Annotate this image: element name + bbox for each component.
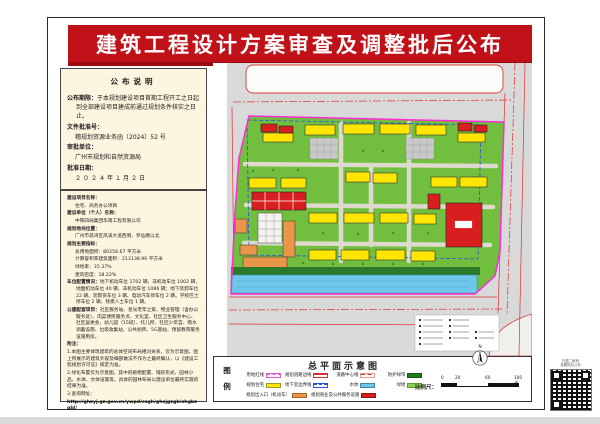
swatch-buffer-green — [407, 373, 422, 378]
authority-value: 广州市规划和自然资源局 — [67, 153, 200, 162]
indicator-row: 绿地率：35.37% — [67, 265, 200, 272]
legend-item: 防护绿带 — [379, 372, 422, 378]
note-item: 3.查询网址： — [67, 392, 200, 399]
swatch-vehicle-entrance — [292, 393, 307, 398]
swatch-site-boundary — [266, 373, 281, 378]
legend-item: 水体 — [332, 382, 375, 388]
legend-item: 道路中心线 — [332, 372, 375, 378]
notes-block: 附注： 1.本图主要体现建筑的总体空间布局相对关系，仅为示意图，图上所展示的建筑… — [67, 342, 200, 413]
indicators-label: 规划主要指标： — [67, 242, 200, 249]
doc-no-value: 穗规划资源业务函〔2024〕52 号 — [67, 133, 200, 142]
note-item: 1.本图主要体现建筑的总体空间布局相对关系，仅为示意图，图上所展示的建筑外观及细… — [67, 350, 200, 370]
legend-item: 规划商业及公共服务设施 — [311, 392, 376, 398]
legend-grid: 用地红线 规划道路边线 道路中心线 防护绿带 规划住宅 地下室边界线 水体 绿地… — [238, 370, 428, 400]
legend-mark: 图 例 — [221, 363, 233, 395]
north-arrow-icon: N — [469, 343, 491, 369]
notice-panel: 公布说明 公布期限：于本规划建设项目首期工程开工之日起到全部建设项目建成前通过规… — [60, 68, 207, 190]
field-label: 规划地块位置： — [67, 227, 200, 234]
legend-panel: 图 例 总平面示意图 用地红线 规划道路边线 道路中心线 防护绿带 规划住宅 地… — [213, 356, 532, 402]
parking-info: 车位配置情况：地下机动车位 1702 辆、非机动车位 1002 辆，地面机动车位… — [67, 280, 200, 307]
page-title: 建筑工程设计方案审查及调整批后公布 — [96, 29, 504, 59]
scale-label: 比例尺： — [415, 383, 437, 391]
notice-period: 公布期限：于本规划建设项目首期工程开工之日起到全部建设项目建成前通过规划条件核实… — [67, 94, 200, 122]
indicator-row: 计算容积率建筑面积：213138.96 平方米 — [67, 257, 200, 264]
approval-date-label: 批准日期： — [67, 164, 200, 173]
authority-label: 审批单位： — [67, 143, 200, 152]
note-item: 2.绿化布置仅为示意图，其中的植物配置、铺装形式、园林小品、水体、文体设施等，具… — [67, 371, 200, 391]
doc-no-label: 文件批准号： — [67, 123, 200, 132]
page-bottom-strip — [0, 417, 600, 424]
field-value: 住宅、商务办公项目 — [67, 204, 200, 211]
qr-block: 扫描二维码 查看批后公布 — [547, 359, 594, 414]
legend-item: 用地红线 — [238, 372, 281, 378]
swatch-commercial — [361, 393, 376, 398]
swatch-water — [360, 383, 375, 388]
field-label: 建设项目名称： — [67, 196, 200, 203]
project-panel: 建设项目名称： 住宅、商务办公项目 建设单位（个人）名称： 中铁四局集团华南工程… — [60, 190, 207, 402]
field-label: 建设单位（个人）名称： — [67, 211, 200, 218]
notice-header: 公布说明 — [67, 76, 200, 88]
swatch-road-edge — [313, 373, 328, 378]
svg-text:N: N — [478, 344, 481, 350]
indicator-row: 总用地面积：80256.67 平方米 — [67, 250, 200, 257]
qr-caption: 查看批后公布 — [547, 363, 594, 367]
legend-item: 规划出入口（机动车） — [246, 392, 307, 398]
qr-code — [550, 369, 592, 411]
query-url[interactable]: http://ghzyj.gz.gov.cn/ywpd/csgh/ghsjgzg… — [67, 400, 200, 413]
swatch-residential — [266, 383, 281, 388]
swatch-road-centerline — [360, 373, 375, 378]
notes-label: 附注： — [67, 342, 200, 349]
field-value: 广州市荔湾区凤溪大道西侧、罗仙路以北 — [67, 234, 200, 241]
legend-item: 规划道路边线 — [285, 372, 328, 378]
scale-bar — [441, 383, 519, 387]
site-plan-map — [213, 63, 532, 356]
swatch-basement-line — [313, 383, 328, 388]
legend-item: 地下室边界线 — [285, 382, 328, 388]
legend-item: 规划住宅 — [238, 382, 281, 388]
amenities-info: 公建配套项目：社区服务站、星光老年之家、物业管理（含办公服务处）、肉菜便民服务点… — [67, 308, 200, 341]
indicator-row: 建筑密度：18.22% — [67, 273, 200, 280]
field-value: 中铁四局集团华南工程有限公司 — [67, 219, 200, 226]
site-plan-drawing — [213, 63, 532, 356]
title-banner: 建筑工程设计方案审查及调整批后公布 — [68, 25, 532, 66]
approval-date-value: ２０２４年１月２日 — [67, 174, 200, 183]
